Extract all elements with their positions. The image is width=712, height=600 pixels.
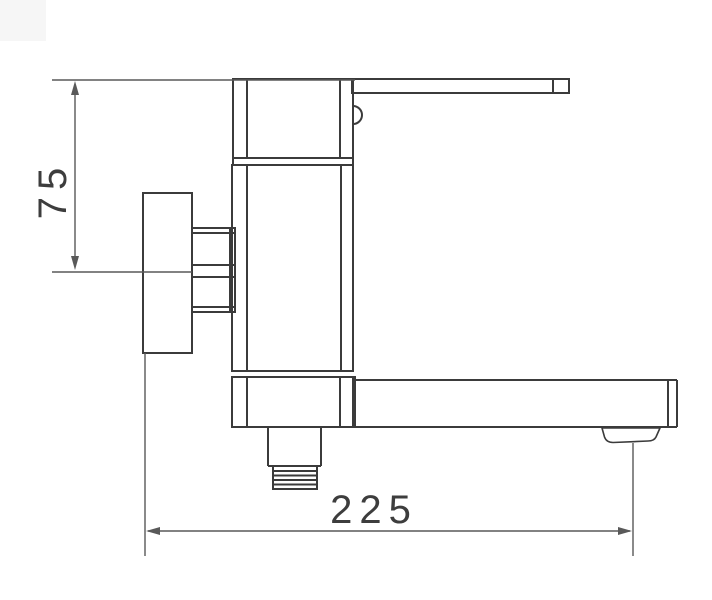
technical-drawing-page: 75 225 [0, 0, 712, 600]
corner-artifact [0, 0, 46, 41]
dim-label-height: 75 [31, 161, 75, 220]
drawing-canvas: 75 225 [0, 0, 712, 600]
dim-label-reach: 225 [330, 488, 418, 532]
